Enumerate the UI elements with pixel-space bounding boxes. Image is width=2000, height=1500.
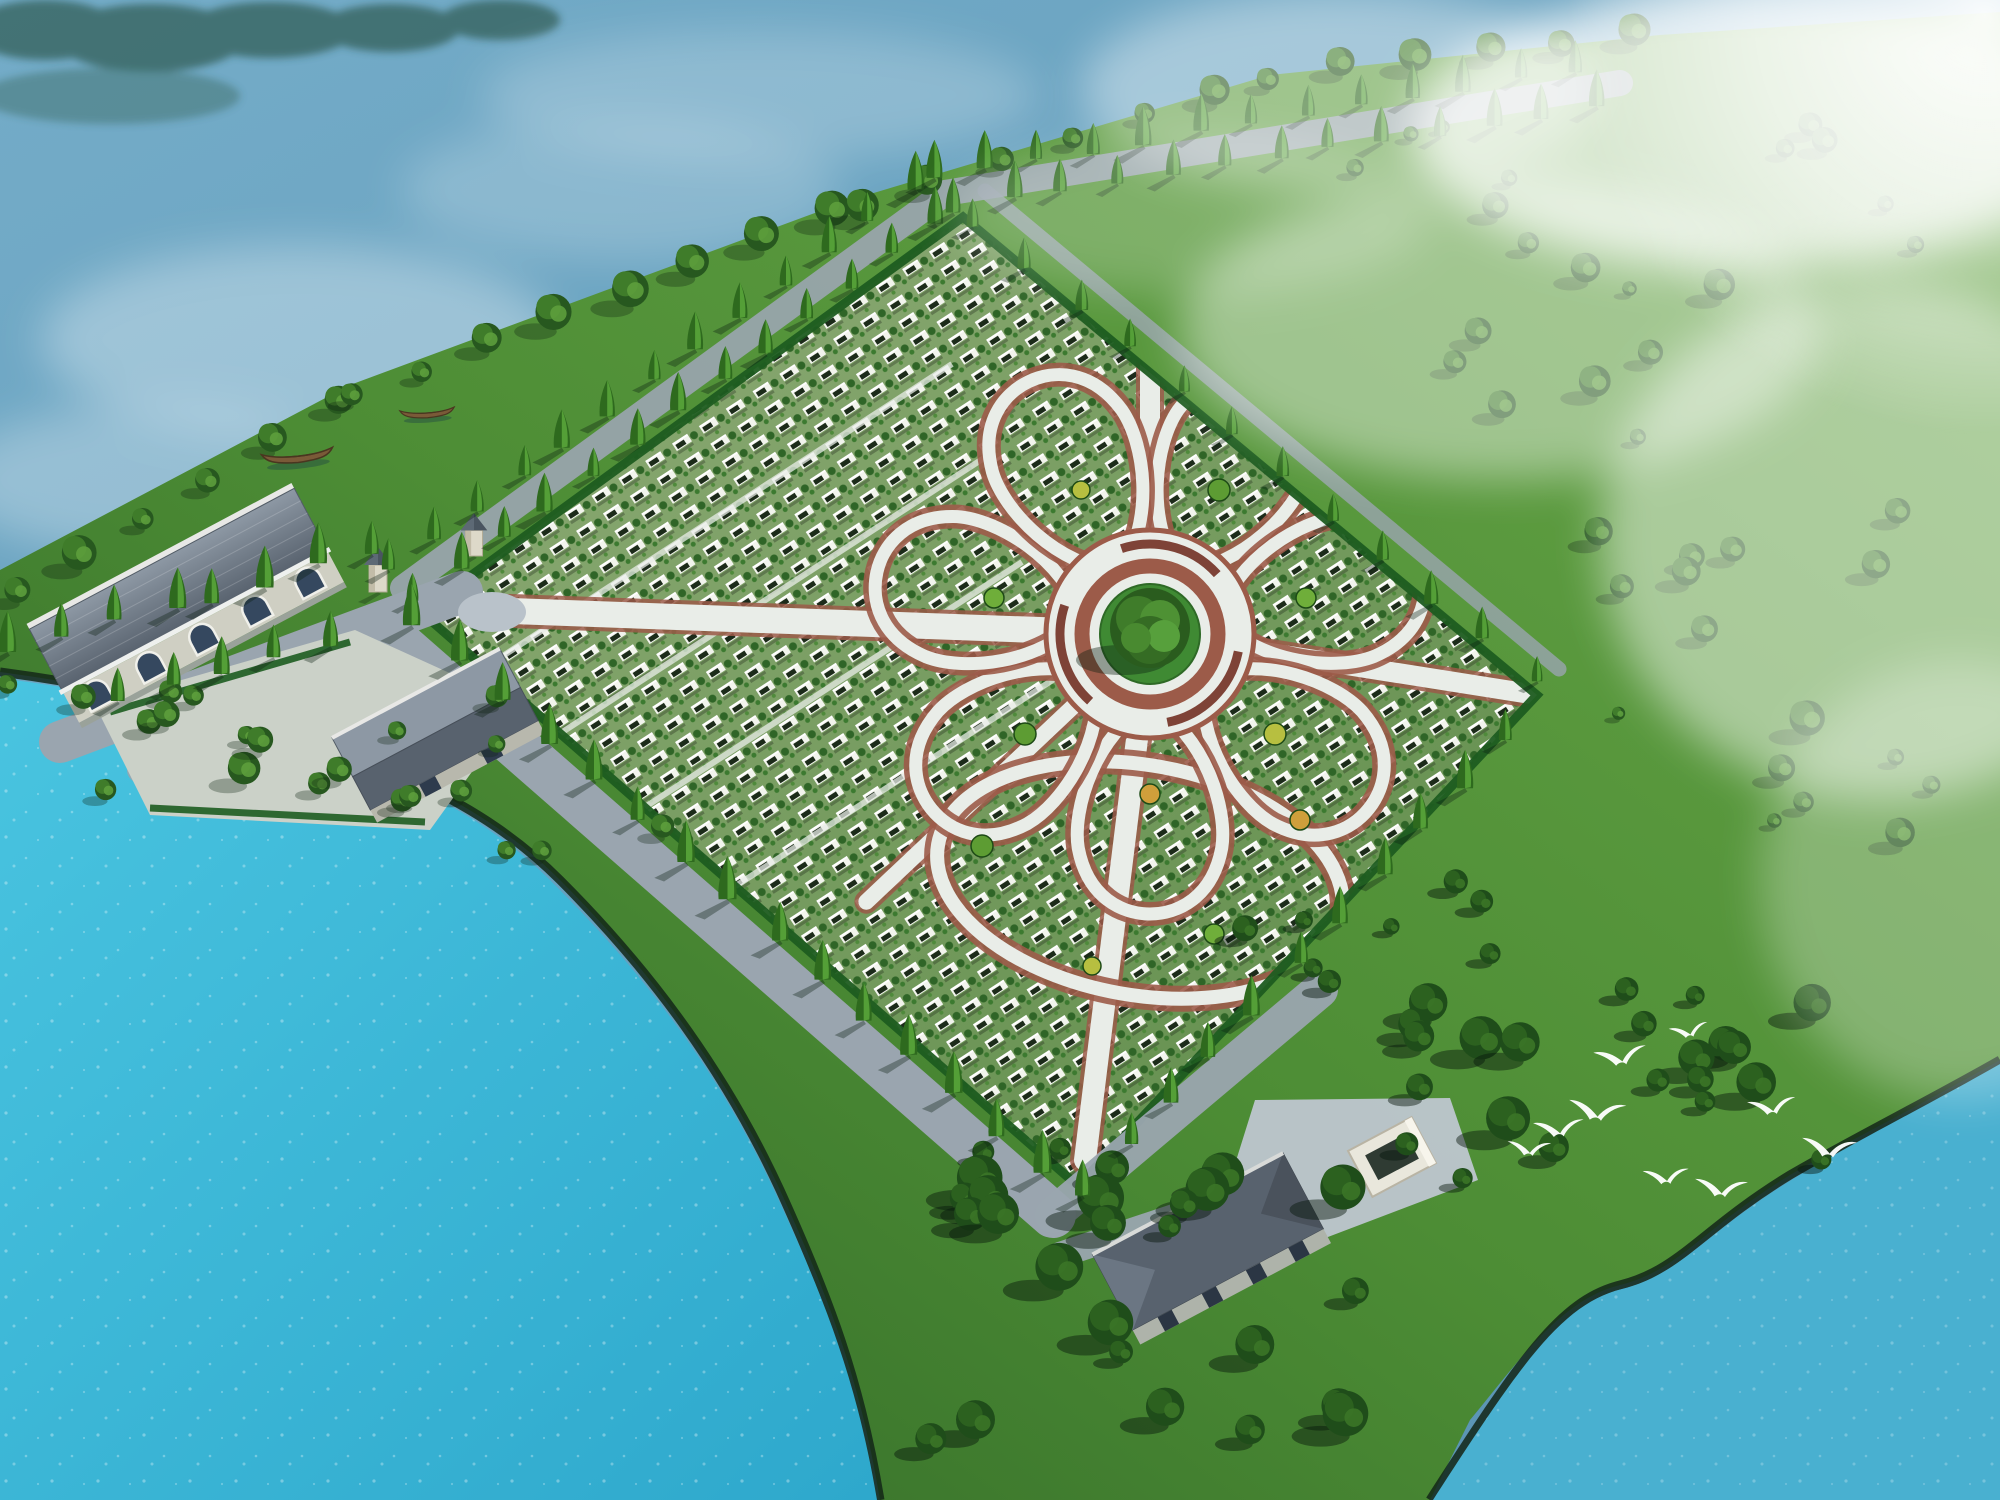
aerial-rendering-stage [0,0,2000,1500]
entrance-plaza [458,592,526,632]
memorial-park-rendering [0,0,2000,1500]
